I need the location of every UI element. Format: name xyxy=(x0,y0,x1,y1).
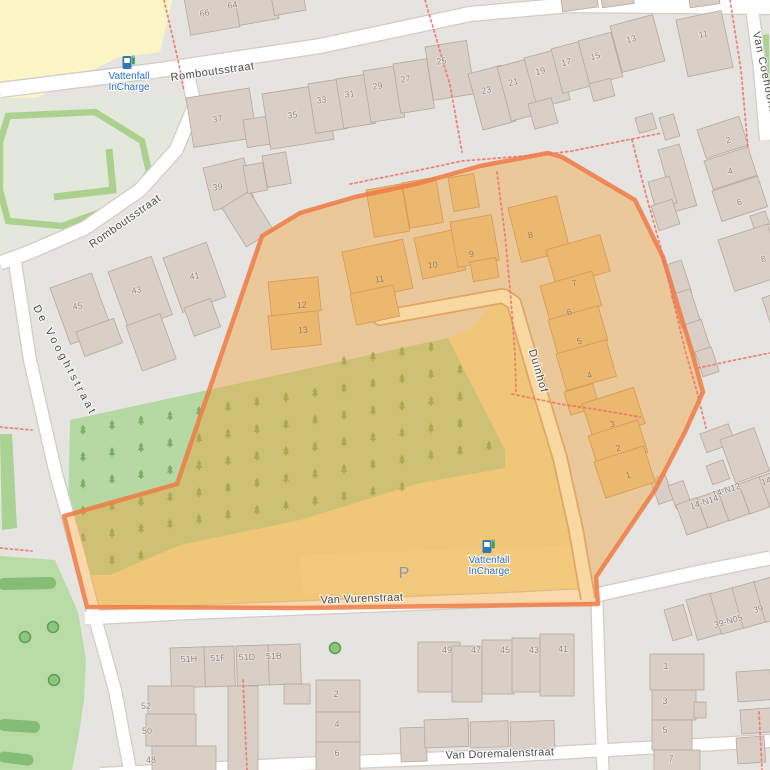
building xyxy=(228,686,258,770)
house-number: 47 xyxy=(471,645,481,655)
house-number: 39 xyxy=(212,181,223,192)
tree-icon xyxy=(330,643,341,654)
building xyxy=(424,718,469,748)
hedge-bar xyxy=(4,757,28,760)
house-number: 51H xyxy=(180,654,197,665)
charging-screen xyxy=(484,542,490,547)
house-number: 4 xyxy=(334,719,339,729)
hedge-bar xyxy=(4,725,34,727)
house-number: 29 xyxy=(372,80,383,91)
building xyxy=(170,647,205,688)
building xyxy=(652,690,696,720)
map-canvas[interactable]: RomboutsstraatRomboutsstraatDe Vooghtstr… xyxy=(0,0,770,770)
house-number: 51F xyxy=(210,653,226,664)
tree-icon xyxy=(20,632,31,643)
house-number: 35 xyxy=(287,109,298,120)
tree-icon xyxy=(49,675,60,686)
house-number: 48 xyxy=(146,755,156,765)
parking-icon: P xyxy=(399,565,410,582)
house-number-highlighted: 10 xyxy=(427,260,438,271)
tree-icon xyxy=(48,622,59,633)
building xyxy=(148,686,194,716)
poi-label-line1: Vattenfall xyxy=(469,555,510,566)
poi-label-line2: InCharge xyxy=(468,566,510,577)
building xyxy=(262,152,291,188)
poi-label-line1: Vattenfall xyxy=(109,71,150,82)
house-number: 7 xyxy=(668,754,673,764)
house-number-highlighted: 12 xyxy=(296,300,307,311)
building xyxy=(470,721,509,748)
building xyxy=(650,654,704,690)
house-number: 45 xyxy=(500,645,510,655)
parking-marker[interactable]: P xyxy=(399,565,410,582)
house-number: 37 xyxy=(212,113,223,124)
building xyxy=(740,708,770,734)
house-number: 49 xyxy=(442,645,452,655)
building xyxy=(736,670,770,702)
building-highlighted xyxy=(268,277,321,316)
house-number: 3 xyxy=(662,696,667,706)
building xyxy=(152,746,216,770)
house-number: 52 xyxy=(141,701,151,711)
building-highlighted xyxy=(268,311,321,350)
house-number: 31 xyxy=(344,88,355,99)
house-number: 51D xyxy=(238,652,255,663)
house-number: 43 xyxy=(529,645,539,655)
building xyxy=(146,714,196,746)
house-number: 33 xyxy=(316,94,327,105)
house-number-highlighted: 11 xyxy=(374,273,385,284)
house-number: 45 xyxy=(72,300,84,312)
house-number-highlighted: 13 xyxy=(297,325,308,336)
hedge-bar xyxy=(4,583,50,584)
building xyxy=(694,702,706,718)
building-highlighted xyxy=(470,257,499,281)
building xyxy=(652,720,692,750)
building xyxy=(425,40,475,100)
plug-icon xyxy=(492,542,495,549)
house-number: 1 xyxy=(663,661,668,671)
charging-screen xyxy=(124,58,130,63)
house-number: 66 xyxy=(199,7,211,19)
house-number: 14 xyxy=(760,475,770,488)
house-number: 50 xyxy=(142,726,152,736)
building-highlighted xyxy=(448,173,480,211)
house-number: 64 xyxy=(227,0,239,11)
house-number: 5 xyxy=(662,725,667,735)
house-number: 27 xyxy=(400,73,411,84)
house-number: 6 xyxy=(334,748,339,758)
house-number: 25 xyxy=(436,55,447,66)
house-number: 41 xyxy=(558,644,568,654)
poi-label-line2: InCharge xyxy=(108,82,150,93)
building xyxy=(400,727,427,762)
house-number: 2 xyxy=(333,689,338,699)
building xyxy=(284,684,310,704)
house-number: 43 xyxy=(131,284,143,296)
house-number: 41 xyxy=(189,270,201,282)
house-number: 51B xyxy=(266,651,282,662)
plug-icon xyxy=(132,58,135,65)
building xyxy=(654,750,700,770)
